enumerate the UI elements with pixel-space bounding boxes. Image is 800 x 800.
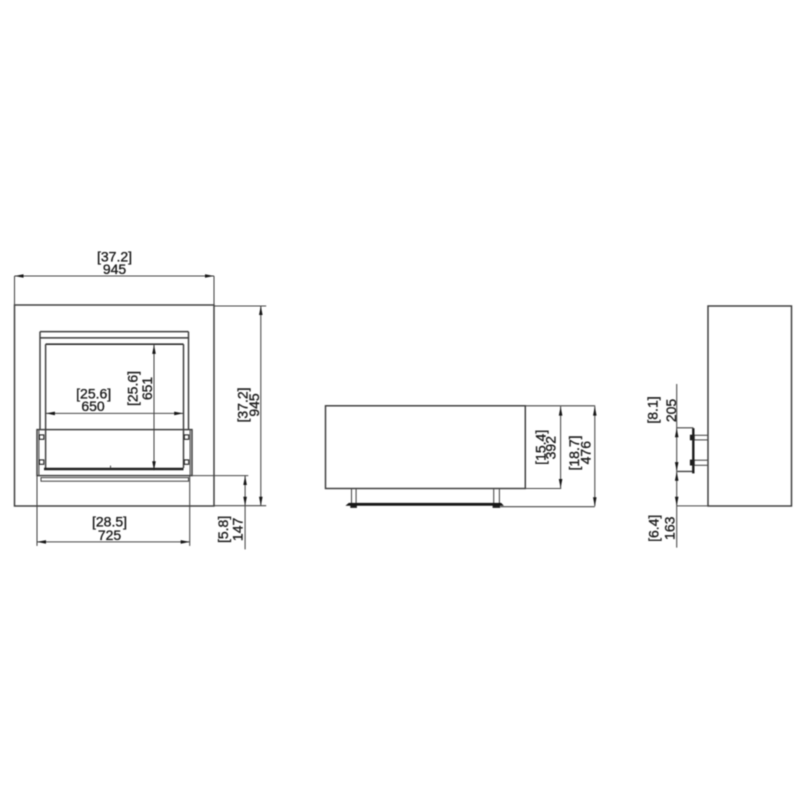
svg-text:[8.1]: [8.1]: [645, 396, 661, 423]
svg-text:651: 651: [139, 377, 155, 401]
svg-text:945: 945: [246, 393, 262, 417]
svg-text:945: 945: [103, 261, 127, 277]
svg-text:725: 725: [98, 527, 122, 543]
svg-text:147: 147: [230, 518, 246, 542]
svg-text:476: 476: [578, 441, 594, 465]
svg-text:650: 650: [81, 398, 105, 414]
svg-text:205: 205: [663, 399, 679, 423]
svg-text:392: 392: [542, 436, 558, 460]
svg-text:163: 163: [662, 516, 678, 540]
svg-text:[6.4]: [6.4]: [645, 515, 661, 542]
